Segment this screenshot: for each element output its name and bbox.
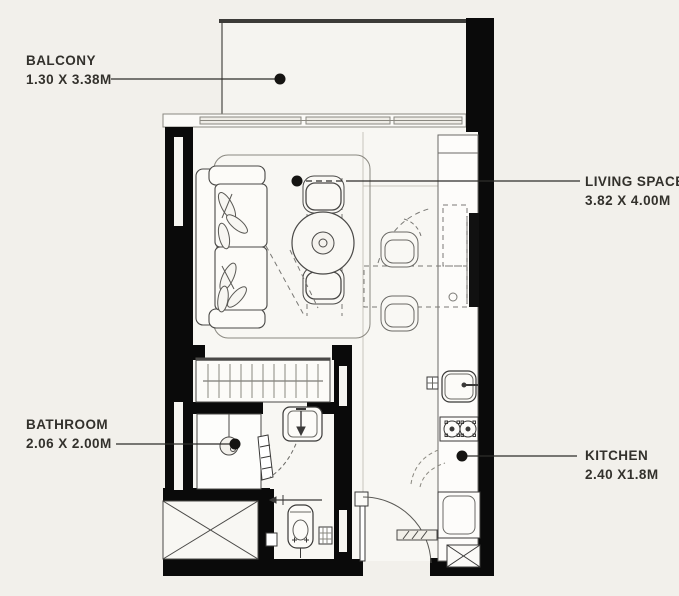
bathroom-label: BATHROOM 2.06 X 2.00M: [26, 415, 112, 453]
kitchen-label-dims: 2.40 X1.8M: [585, 465, 659, 484]
bathroom-label-dims: 2.06 X 2.00M: [26, 434, 112, 453]
living-space-label: LIVING SPACE 3.82 X 4.00M: [585, 172, 679, 210]
floorplan-svg: [0, 0, 679, 596]
sofa: [196, 166, 267, 328]
kitchen-label: KITCHEN 2.40 X1.8M: [585, 446, 659, 484]
stove: [440, 417, 478, 441]
wardrobe: [196, 358, 330, 402]
floorplan-canvas: BALCONY 1.30 X 3.38M LIVING SPACE 3.82 X…: [0, 0, 679, 596]
balcony-label-name: BALCONY: [26, 51, 112, 70]
service-shaft-right: [447, 545, 480, 567]
kitchen-label-name: KITCHEN: [585, 446, 659, 465]
bathroom-sink: [283, 407, 322, 441]
balcony-label: BALCONY 1.30 X 3.38M: [26, 51, 112, 89]
bathroom-label-name: BATHROOM: [26, 415, 112, 434]
fridge: [438, 492, 480, 538]
shower: [197, 414, 261, 489]
living-space-label-dims: 3.82 X 4.00M: [585, 191, 679, 210]
living-space-label-name: LIVING SPACE: [585, 172, 679, 191]
service-shaft-left: [163, 501, 258, 559]
window-band: [163, 114, 466, 127]
balcony-label-dims: 1.30 X 3.38M: [26, 70, 112, 89]
